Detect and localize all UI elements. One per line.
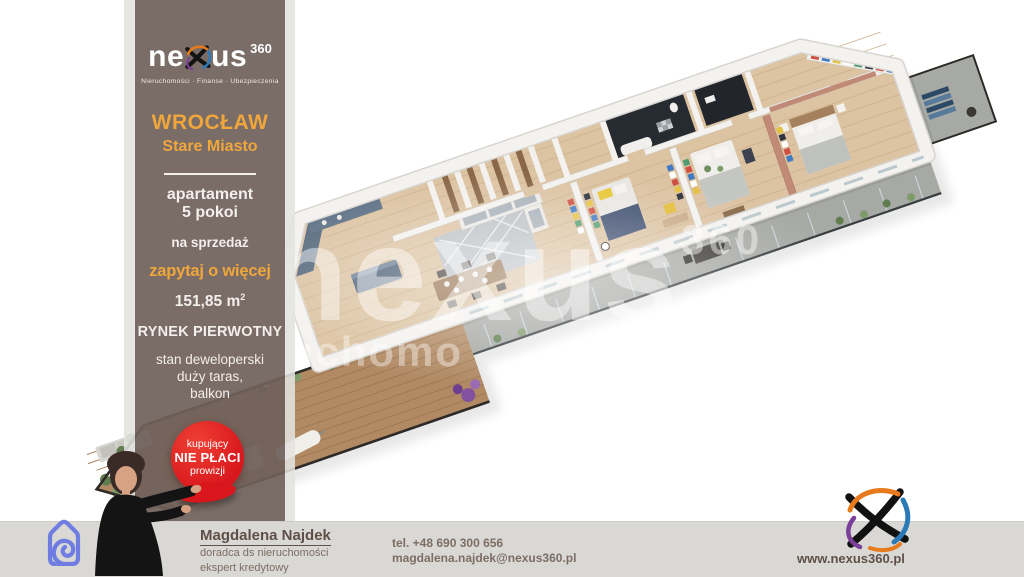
logo-tagline: Nieruchomości · Finanse · Ubezpieczenia <box>135 78 285 85</box>
agent-name: Magdalena Najdek <box>200 527 331 546</box>
contact-info: tel. +48 690 300 656 magdalena.najdek@ne… <box>392 536 576 566</box>
agent-info: Magdalena Najdek doradca ds nieruchomośc… <box>200 527 331 575</box>
sidebar-left-edge <box>124 0 135 521</box>
feature-item: stan deweloperski <box>135 351 285 368</box>
feature-item: duży taras, <box>135 368 285 385</box>
nexus-x-icon <box>184 44 211 71</box>
logo-360: 360 <box>250 41 272 56</box>
property-type: apartament 5 pokoi <box>135 186 285 222</box>
district: Stare Miasto <box>135 138 285 156</box>
flyer: nexus360 Nieruchomo ne us 360 Nieruchomo… <box>0 0 1024 576</box>
nexus-logo: ne us 360 Nieruchomości · Finanse · Ubez… <box>135 40 285 85</box>
agent-role-1: doradca ds nieruchomości <box>200 547 331 561</box>
watermark: nexus360 <box>266 196 763 344</box>
area-value: 151,85 m2 <box>135 292 285 311</box>
feature-item: balkon <box>135 385 285 402</box>
email-address: magdalena.najdek@nexus360.pl <box>392 551 576 566</box>
features-list: stan deweloperski duży taras, balkon <box>135 351 285 402</box>
divider <box>164 173 256 175</box>
house-loop-icon <box>44 514 84 566</box>
logo-word-end: us <box>211 40 247 74</box>
nexus-x-logo <box>840 484 914 556</box>
phone-number: tel. +48 690 300 656 <box>392 536 576 551</box>
agent-photo <box>85 446 215 576</box>
agent-role-2: ekspert kredytowy <box>200 562 331 576</box>
logo-word-start: ne <box>148 40 184 74</box>
sidebar-right-edge <box>285 0 295 521</box>
city: WROCŁAW <box>135 111 285 135</box>
offer-type: na sprzedaż <box>135 235 285 250</box>
market-type: RYNEK PIERWOTNY <box>135 324 285 340</box>
property-type-line: apartament <box>135 186 285 204</box>
rooms-count: 5 pokoi <box>135 204 285 222</box>
cta-text: zapytaj o więcej <box>135 262 285 281</box>
